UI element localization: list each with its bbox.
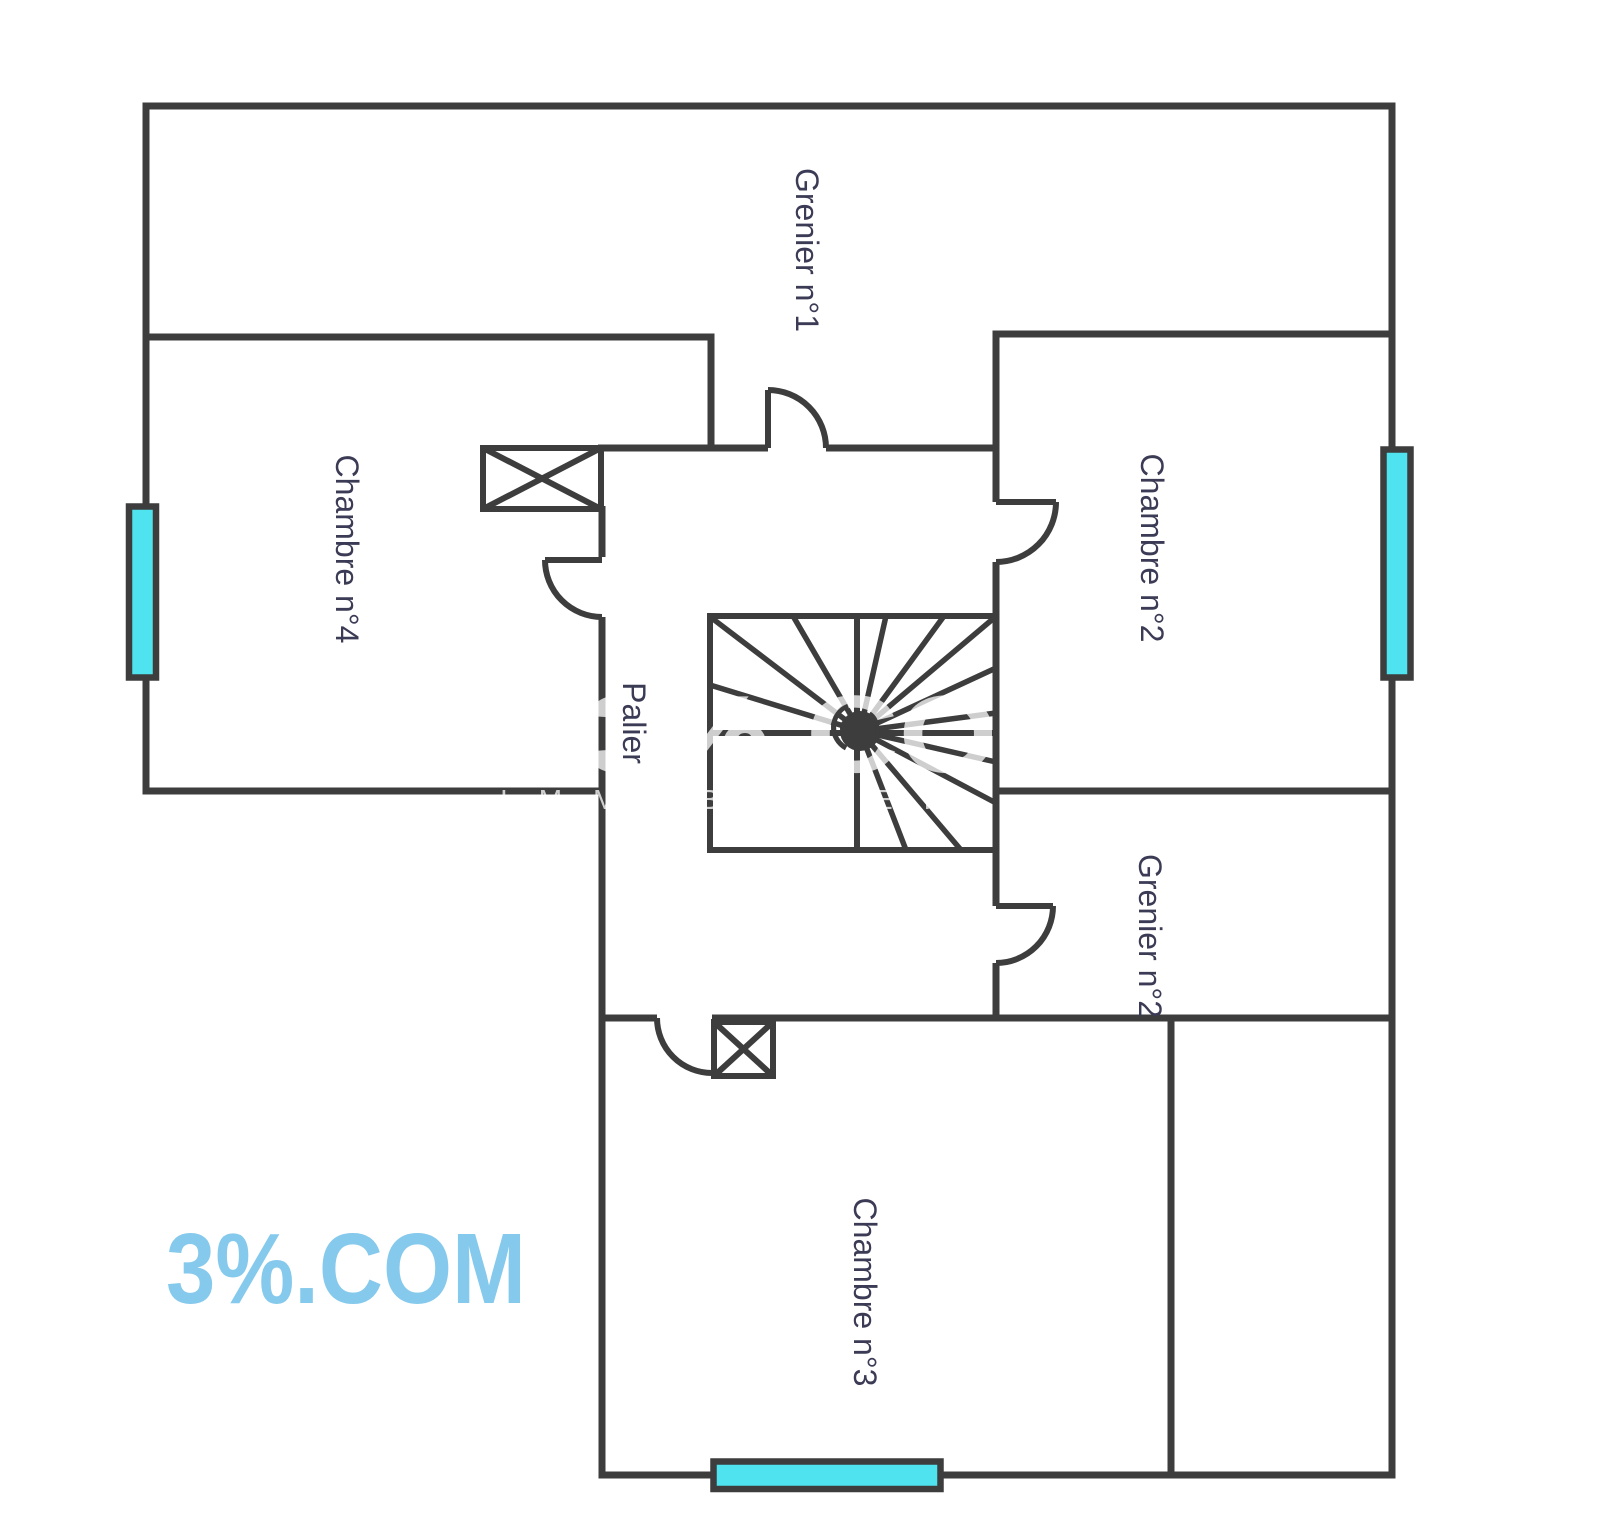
svg-text:Chambre n°3: Chambre n°3 <box>847 1198 883 1387</box>
svg-text:Grenier n°2: Grenier n°2 <box>1132 854 1168 1018</box>
svg-text:Grenier n°1: Grenier n°1 <box>789 168 825 332</box>
svg-text:IMMOBILIER: IMMOBILIER <box>500 784 975 815</box>
svg-text:3%.COM: 3%.COM <box>166 1213 526 1325</box>
svg-text:Palier: Palier <box>616 682 652 764</box>
svg-text:Chambre n°4: Chambre n°4 <box>329 455 365 644</box>
svg-text:Chambre n°2: Chambre n°2 <box>1134 454 1170 643</box>
